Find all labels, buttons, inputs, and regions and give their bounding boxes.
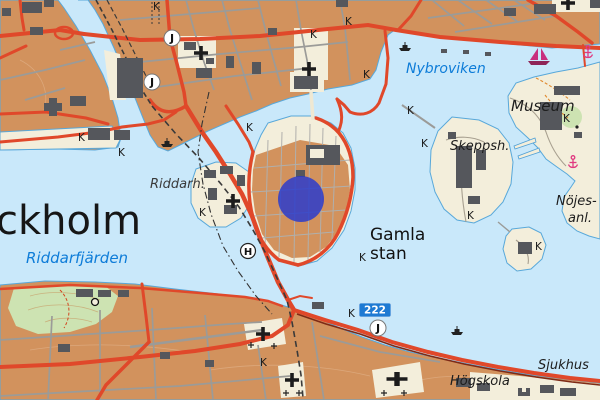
station-letter: J bbox=[169, 32, 174, 45]
k-label: K bbox=[359, 252, 367, 264]
rail-station-marker[interactable]: J bbox=[370, 320, 386, 336]
water-label-riddarfjarden: Riddarfjärden bbox=[26, 249, 128, 267]
place-label-gamla-stan-1: Gamla bbox=[370, 225, 425, 245]
k-label: K bbox=[310, 29, 318, 41]
landmark-ring-icon bbox=[92, 299, 99, 306]
place-label-skeppsholmen: Skeppsh. bbox=[450, 139, 509, 154]
poi-dot bbox=[575, 125, 578, 128]
k-label: K bbox=[467, 210, 475, 222]
rail-station-marker[interactable]: J bbox=[144, 74, 160, 90]
station-letter: J bbox=[375, 322, 380, 335]
map-canvas[interactable]: J J J H 222 ckholm Riddarfjärden Nybrovi… bbox=[0, 0, 600, 400]
rail-station-marker[interactable]: J bbox=[164, 30, 180, 46]
place-label-hogskola: Högskola bbox=[450, 374, 510, 389]
location-marker-circle[interactable] bbox=[278, 176, 324, 222]
place-label-gamla-stan-2: stan bbox=[370, 244, 407, 264]
water-label-nybroviken: Nybroviken bbox=[406, 61, 486, 77]
k-label: K bbox=[348, 308, 356, 320]
k-label: K bbox=[246, 122, 254, 134]
route-number: 222 bbox=[364, 305, 386, 317]
place-label-nojes-1: Nöjes- bbox=[556, 194, 597, 209]
k-label: K bbox=[363, 69, 371, 81]
station-letter: J bbox=[149, 76, 154, 89]
helipad-marker: H bbox=[241, 244, 256, 259]
city-label: ckholm bbox=[0, 198, 141, 244]
k-label: K bbox=[563, 113, 571, 125]
k-label: K bbox=[535, 241, 543, 253]
place-label-sjukhus: Sjukhus bbox=[538, 358, 589, 373]
k-label: K bbox=[153, 1, 161, 13]
route-number-badge: 222 bbox=[359, 303, 391, 317]
k-label: K bbox=[260, 357, 268, 369]
k-label: K bbox=[345, 16, 353, 28]
k-label: K bbox=[421, 138, 429, 150]
map-screenshot: J J J H 222 ckholm Riddarfjärden Nybrovi… bbox=[0, 0, 600, 400]
k-label: K bbox=[199, 207, 207, 219]
k-label: K bbox=[118, 147, 126, 159]
helipad-letter: H bbox=[244, 247, 252, 258]
k-label: K bbox=[78, 132, 86, 144]
place-label-riddarholmen: Riddarh. bbox=[150, 177, 205, 192]
norrbro-bridge bbox=[311, 92, 313, 120]
place-label-nojes-2: anl. bbox=[568, 211, 592, 226]
k-label: K bbox=[407, 105, 415, 117]
